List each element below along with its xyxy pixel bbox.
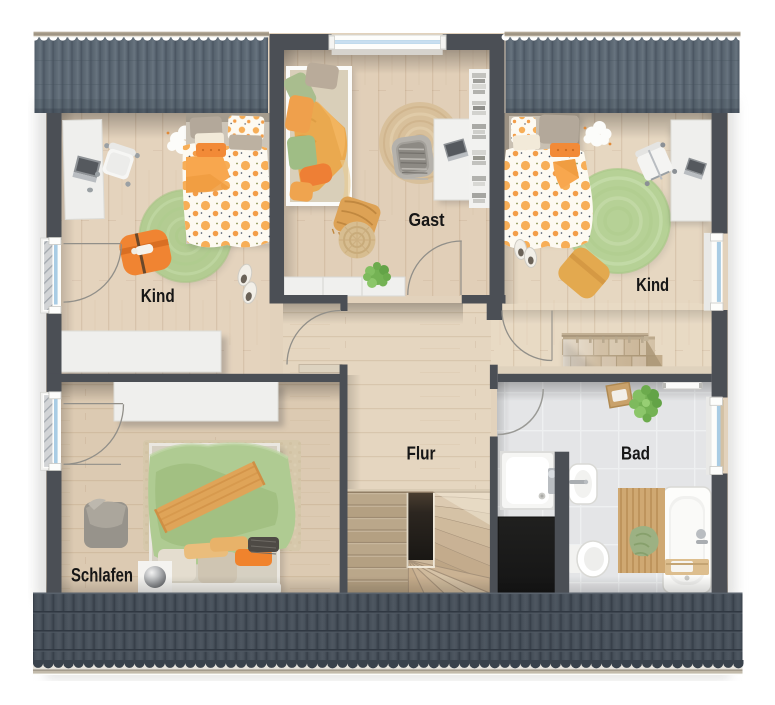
- svg-text:Schlafen: Schlafen: [71, 566, 133, 587]
- svg-text:Kind: Kind: [141, 286, 175, 306]
- svg-text:Gast: Gast: [409, 210, 445, 230]
- svg-text:Bad: Bad: [621, 443, 650, 463]
- svg-text:Flur: Flur: [407, 444, 436, 464]
- svg-text:Kind: Kind: [636, 275, 669, 295]
